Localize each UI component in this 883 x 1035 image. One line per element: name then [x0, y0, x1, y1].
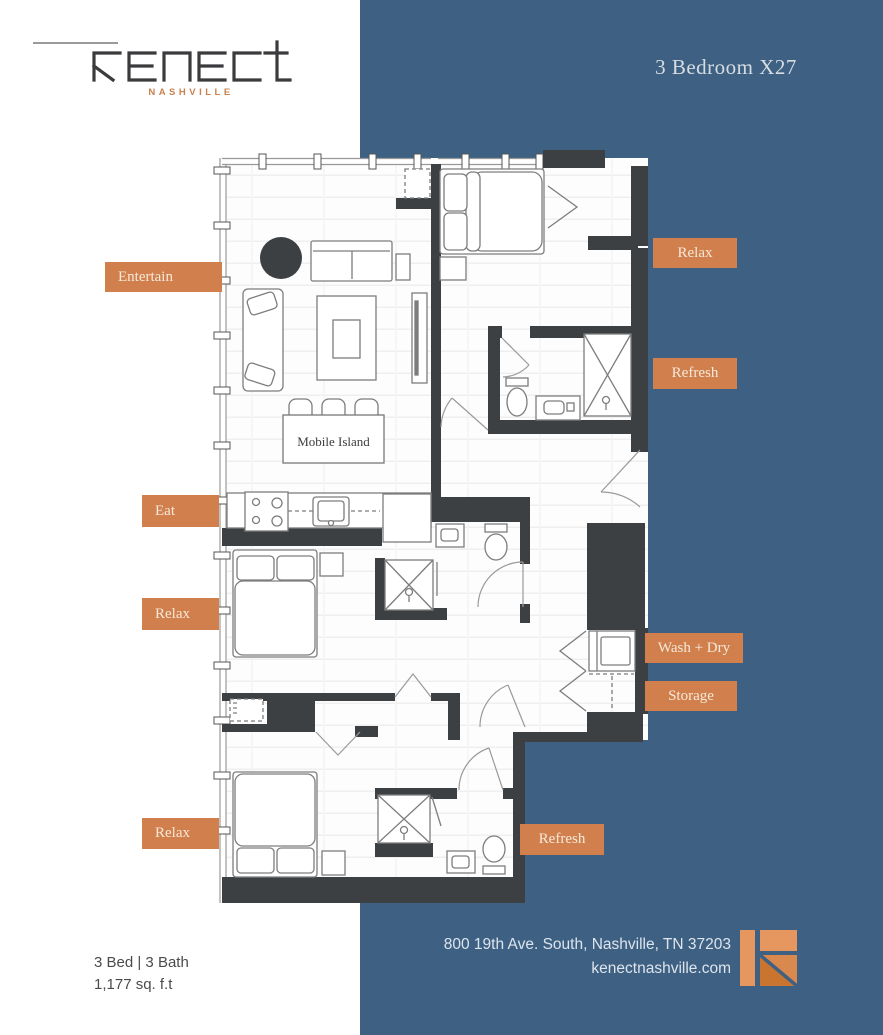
label-eat: Eat: [142, 495, 219, 527]
utility-closet-icon: [405, 169, 430, 198]
coffee-table-icon: [317, 296, 376, 380]
floorplan: [0, 0, 883, 1035]
toilet-icon: [485, 524, 507, 560]
website-link[interactable]: kenectnashville.com: [430, 957, 731, 981]
beds-baths-text: 3 Bed | 3 Bath: [94, 952, 189, 974]
side-table-icon: [396, 254, 410, 280]
toilet-icon: [483, 836, 505, 874]
contact-info: 800 19th Ave. South, Nashville, TN 37203…: [430, 933, 731, 981]
label-refresh-bottom: Refresh: [520, 824, 604, 855]
sink-icon: [536, 396, 580, 420]
area-text: 1,177 sq. f.t: [94, 974, 189, 996]
sofa-icon: [311, 241, 392, 281]
tv-console-icon: [412, 293, 427, 383]
label-entertain: Entertain: [105, 262, 222, 292]
fridge-icon: [383, 494, 431, 542]
label-relax-bottom: Relax: [142, 818, 219, 849]
kitchen-sink-icon: [313, 497, 349, 526]
toilet-icon: [506, 378, 528, 416]
shower-icon: [385, 560, 437, 610]
nightstand-icon: [320, 553, 343, 576]
sink-icon: [447, 851, 475, 873]
unit-summary: 3 Bed | 3 Bath 1,177 sq. f.t: [94, 952, 189, 996]
island-label: Mobile Island: [283, 429, 384, 455]
round-rug-icon: [260, 237, 302, 279]
sink-icon: [436, 524, 464, 547]
stove-icon: [245, 492, 288, 531]
label-relax-right: Relax: [653, 238, 737, 268]
shower-icon: [584, 334, 631, 416]
label-wash-dry: Wash + Dry: [645, 633, 743, 663]
label-storage: Storage: [645, 681, 737, 711]
address-text: 800 19th Ave. South, Nashville, TN 37203: [430, 933, 731, 957]
nightstand-icon: [322, 851, 345, 875]
label-refresh-right: Refresh: [653, 358, 737, 389]
nightstand-icon: [440, 257, 466, 280]
k-mark-icon: [740, 929, 797, 987]
label-relax-mid: Relax: [142, 598, 219, 630]
reach-in-closet-icon: [230, 699, 263, 721]
chaise-icon: [243, 289, 283, 391]
